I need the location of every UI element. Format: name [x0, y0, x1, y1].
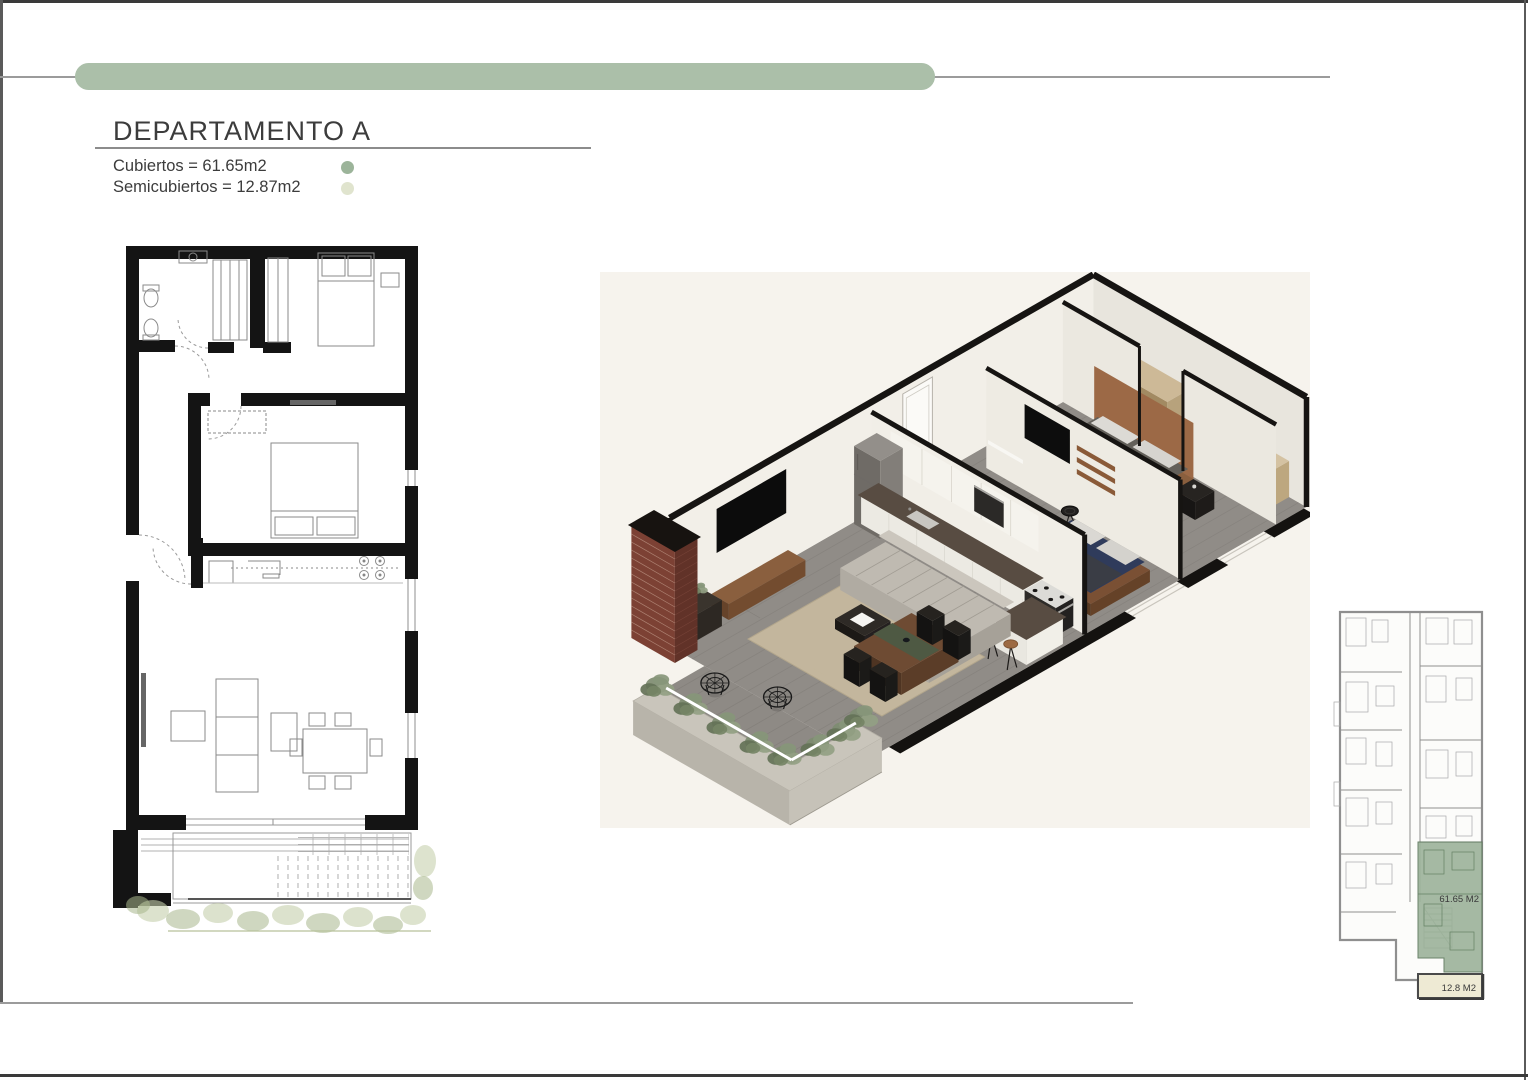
semicovered-area-dot-icon	[341, 182, 354, 195]
page-title: DEPARTAMENTO A	[113, 116, 371, 147]
keyplan-unit-highlight	[1418, 842, 1482, 972]
keyplan-area-main-label: 61.65 M2	[1439, 894, 1479, 905]
page-border-top	[0, 0, 1528, 3]
page-border-left	[0, 0, 3, 1004]
page-border-right	[1524, 0, 1526, 1080]
plan-windows	[186, 470, 415, 825]
plan-balcony	[141, 833, 411, 903]
keyplan-area-semi-label: 12.8 M2	[1442, 983, 1476, 994]
covered-area-dot-icon	[341, 161, 354, 174]
legend-covered: Cubiertos = 61.65m2	[113, 157, 267, 176]
title-underline	[95, 147, 591, 149]
header-accent-bar	[75, 63, 935, 90]
plan-walls	[113, 246, 418, 908]
floorplan-2d	[113, 243, 443, 943]
plan-furniture	[141, 251, 403, 792]
page-border-bottom	[0, 1074, 1528, 1077]
plan-sheet-page: { "page": { "background": "#ffffff", "bo…	[0, 0, 1528, 1080]
render-3d-isometric	[600, 272, 1310, 828]
legend-semicovered: Semicubiertos = 12.87m2	[113, 178, 301, 197]
footer-rule	[0, 1002, 1133, 1004]
keyplan: 61.65 M2 12.8 M2	[1332, 602, 1490, 1000]
